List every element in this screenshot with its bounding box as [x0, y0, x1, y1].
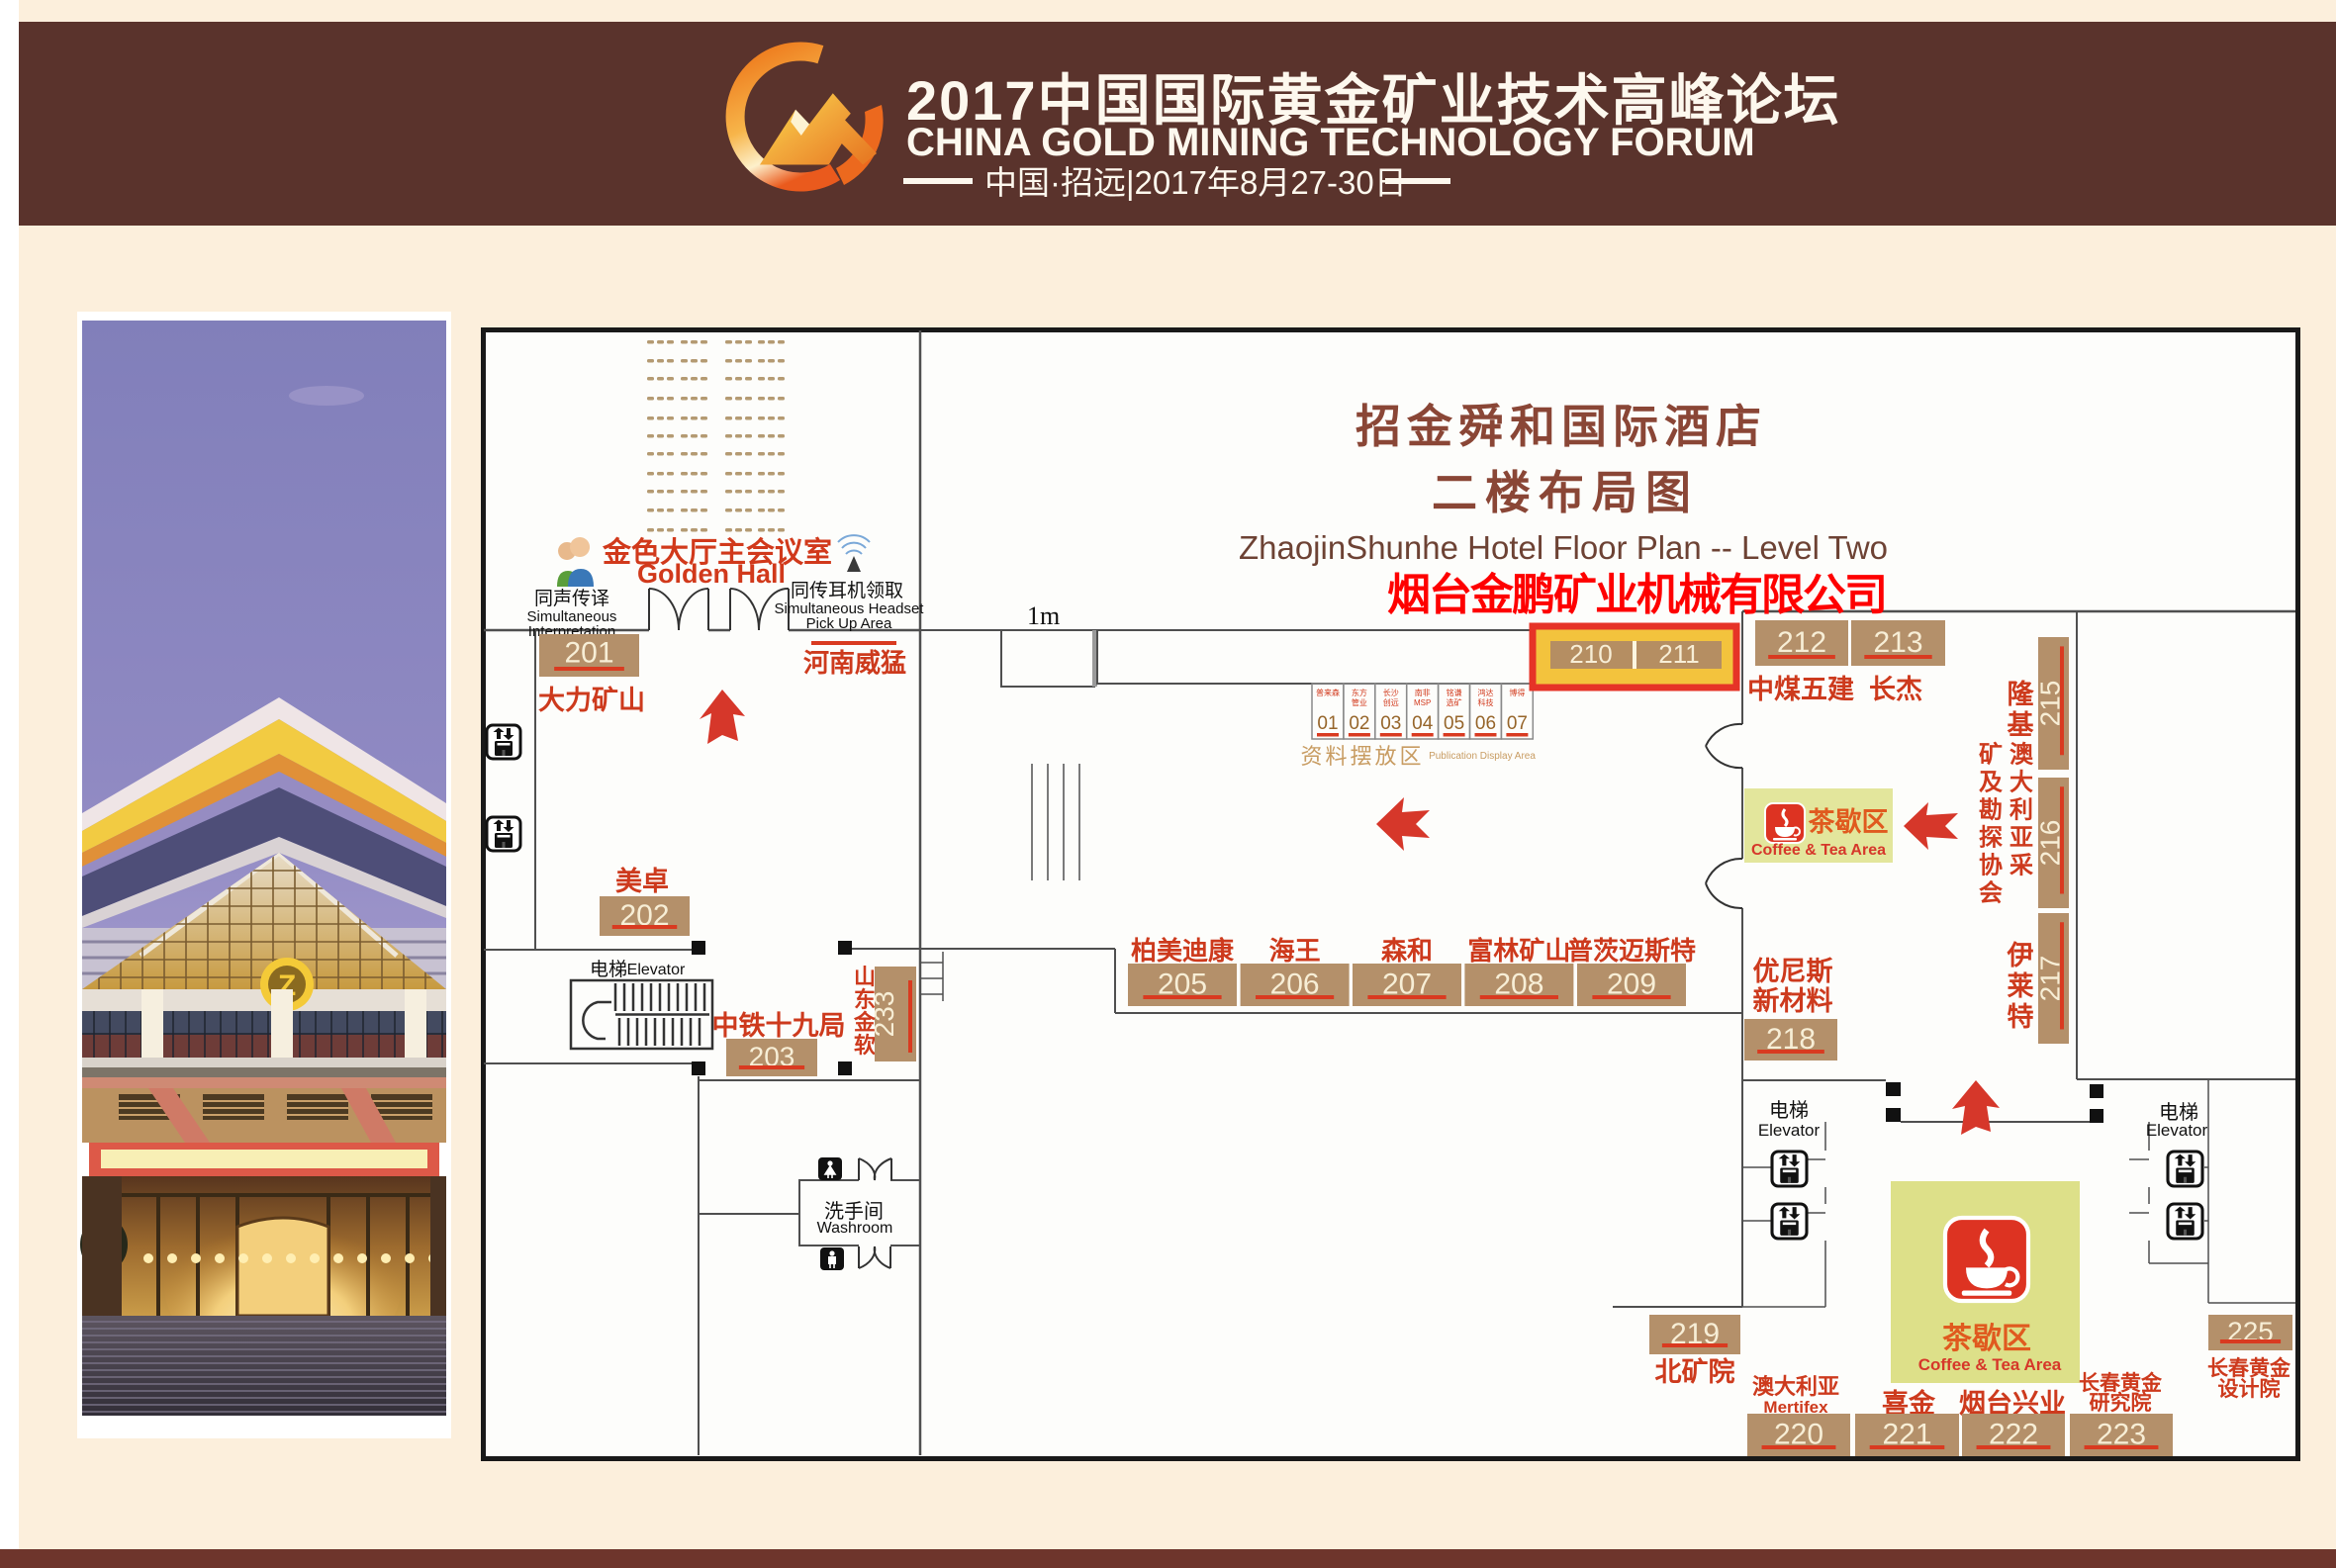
svg-text:普茨迈斯特: 普茨迈斯特	[1567, 936, 1696, 966]
svg-text:管业: 管业	[1352, 697, 1367, 707]
svg-text:新材料: 新材料	[1753, 985, 1833, 1016]
svg-text:南非: 南非	[1415, 688, 1431, 697]
svg-text:Coffee & Tea Area: Coffee & Tea Area	[1751, 842, 1886, 859]
svg-text:海王: 海王	[1269, 936, 1321, 966]
svg-text:Golden Hall: Golden Hall	[637, 559, 786, 589]
svg-text:05: 05	[1444, 713, 1464, 734]
svg-text:201: 201	[564, 636, 613, 669]
svg-text:同声传译: 同声传译	[534, 588, 609, 609]
svg-text:普来森: 普来森	[1316, 688, 1340, 697]
svg-text:茶歇区: 茶歇区	[1809, 807, 1889, 837]
svg-text:电梯: 电梯	[1769, 1099, 1809, 1122]
svg-text:设计院: 设计院	[2218, 1377, 2281, 1401]
svg-text:中煤五建: 中煤五建	[1747, 675, 1854, 704]
svg-text:柏美迪康: 柏美迪康	[1131, 936, 1235, 966]
svg-text:Washroom: Washroom	[817, 1220, 893, 1237]
svg-text:Coffee & Tea Area: Coffee & Tea Area	[1918, 1355, 2062, 1374]
svg-text:210: 210	[1569, 639, 1612, 669]
svg-text:东方: 东方	[1352, 688, 1367, 697]
svg-text:河南威猛: 河南威猛	[803, 648, 906, 678]
svg-text:优尼斯: 优尼斯	[1753, 957, 1833, 986]
svg-text:二楼布局图: 二楼布局图	[1432, 467, 1699, 518]
svg-text:博得: 博得	[1509, 688, 1525, 697]
svg-text:211: 211	[1658, 639, 1699, 669]
svg-text:Elevator: Elevator	[1758, 1121, 1821, 1140]
svg-text:Elevator: Elevator	[2146, 1121, 2208, 1140]
svg-text:06: 06	[1475, 713, 1496, 734]
svg-text:CHINA GOLD MINING TECHNOLOGY F: CHINA GOLD MINING TECHNOLOGY FORUM	[906, 121, 1755, 164]
svg-text:资料摆放区: 资料摆放区	[1300, 744, 1424, 769]
svg-text:矿及勘探协会: 矿及勘探协会	[1979, 740, 2003, 906]
svg-text:04: 04	[1412, 713, 1434, 734]
svg-text:中铁十九局: 中铁十九局	[712, 1011, 846, 1041]
svg-text:07: 07	[1507, 713, 1528, 734]
svg-text:研究院: 研究院	[2090, 1391, 2152, 1415]
svg-text:茶歇区: 茶歇区	[1942, 1323, 2031, 1355]
svg-text:烟台金鹏矿业机械有限公司: 烟台金鹏矿业机械有限公司	[1387, 571, 1886, 619]
svg-text:北矿院: 北矿院	[1655, 1356, 1735, 1387]
svg-text:中国·招远|2017年8月27-30日: 中国·招远|2017年8月27-30日	[984, 164, 1407, 201]
svg-text:长沙: 长沙	[1383, 688, 1399, 697]
svg-text:伊莱特: 伊莱特	[2007, 941, 2034, 1032]
svg-text:1m: 1m	[1027, 601, 1060, 630]
svg-text:铭谦: 铭谦	[1447, 688, 1462, 697]
svg-text:科技: 科技	[1478, 697, 1494, 707]
svg-text:03: 03	[1380, 713, 1401, 734]
svg-text:选矿: 选矿	[1447, 697, 1462, 707]
svg-text:同传耳机领取: 同传耳机领取	[791, 580, 903, 601]
svg-text:招金舜和国际酒店: 招金舜和国际酒店	[1355, 401, 1767, 452]
svg-text:长春黄金: 长春黄金	[2207, 1356, 2291, 1380]
svg-text:MSP: MSP	[1414, 698, 1431, 707]
svg-text:鸿达: 鸿达	[1478, 688, 1494, 697]
svg-text:森和: 森和	[1381, 936, 1433, 966]
svg-text:澳大利亚采: 澳大利亚采	[2009, 741, 2034, 878]
svg-text:澳大利亚: 澳大利亚	[1752, 1374, 1839, 1399]
svg-text:长杰: 长杰	[1869, 675, 1922, 704]
svg-text:美卓: 美卓	[615, 866, 669, 896]
svg-text:02: 02	[1349, 713, 1369, 734]
svg-text:大力矿山: 大力矿山	[538, 685, 645, 715]
svg-text:01: 01	[1317, 713, 1338, 734]
svg-text:隆基: 隆基	[2008, 680, 2035, 740]
svg-text:电梯: 电梯	[590, 959, 627, 980]
svg-text:Pick Up Area: Pick Up Area	[806, 615, 892, 632]
svg-text:ZhaojinShunhe Hotel Floor Plan: ZhaojinShunhe Hotel Floor Plan -- Level …	[1239, 529, 1888, 566]
svg-text:Publication Display Area: Publication Display Area	[1429, 751, 1536, 762]
svg-text:213: 213	[1873, 626, 1922, 659]
svg-text:富林矿山: 富林矿山	[1467, 936, 1570, 966]
svg-text:233: 233	[869, 991, 899, 1038]
svg-text:Elevator: Elevator	[627, 962, 686, 978]
svg-text:212: 212	[1777, 626, 1826, 659]
svg-text:创远: 创远	[1383, 697, 1399, 707]
